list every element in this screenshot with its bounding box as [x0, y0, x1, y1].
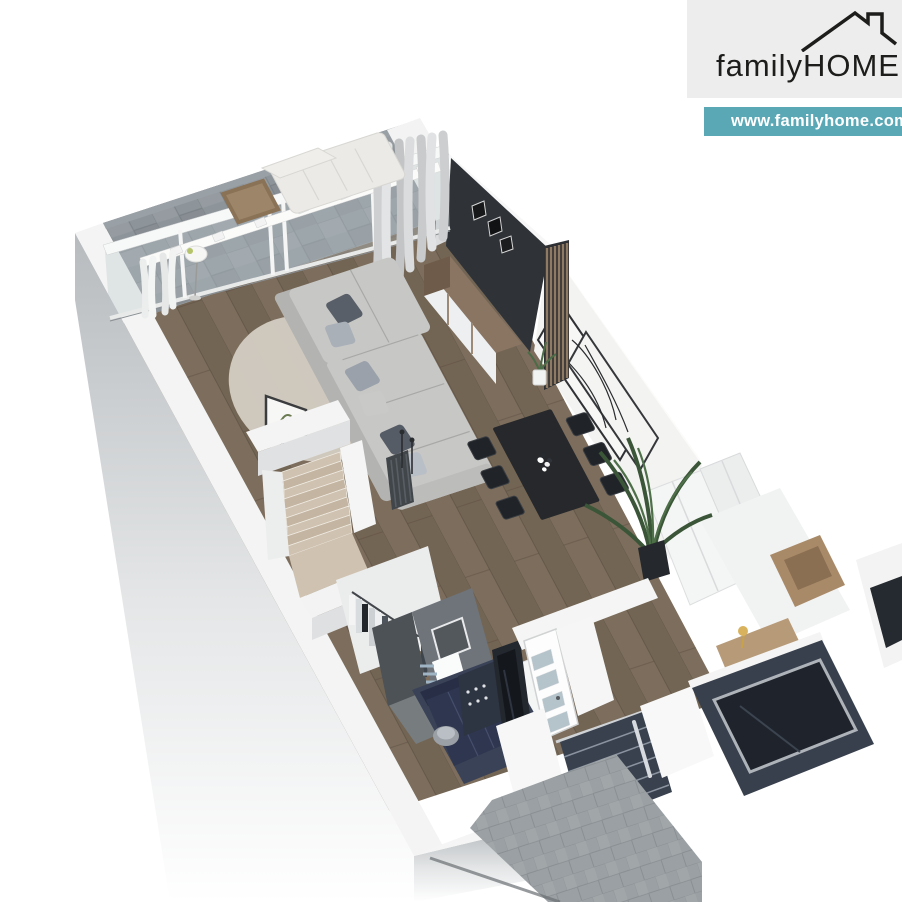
logo-roof-icon	[799, 10, 899, 52]
door-handle-dot	[556, 696, 560, 700]
small-plant-pot	[533, 370, 546, 385]
floor-lamp-base	[189, 296, 201, 301]
floor-lamp-accent	[187, 248, 193, 254]
website-url: www.familyhome.com.	[704, 112, 902, 131]
brand-logo-panel: familyHOME	[687, 0, 902, 98]
floor-lamp-shade	[185, 246, 207, 262]
logo-home: HOME	[803, 48, 900, 83]
website-banner: www.familyhome.com.	[704, 107, 902, 136]
logo-family: family	[716, 48, 803, 83]
candle-top-1	[400, 430, 405, 435]
desk-lamp-shade	[738, 626, 748, 636]
floorplan-visualization: familyHOME www.familyhome.com.	[0, 0, 902, 902]
candle-top-2	[410, 438, 415, 443]
pouf-top	[437, 727, 455, 740]
logo-wordmark: familyHOME	[716, 48, 900, 84]
